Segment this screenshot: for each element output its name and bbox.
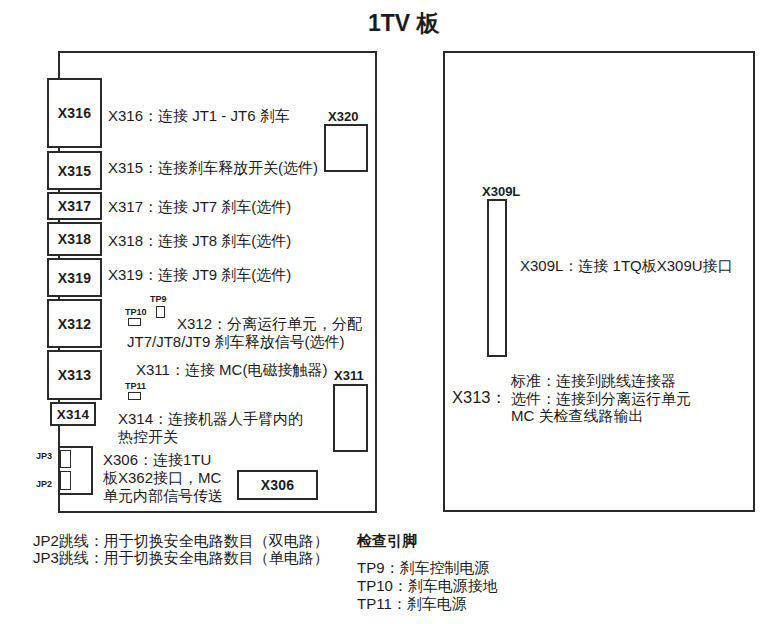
connector-x309l: [487, 199, 507, 357]
x312-description-line2: JT7/JT8/JT9 刹车释放信号(选件): [127, 333, 345, 351]
connector-x313: X313: [47, 350, 102, 400]
x318-description: X318：连接 JT8 刹车(选件): [108, 232, 291, 250]
x311-description: X311：连接 MC(电磁接触器): [136, 361, 327, 379]
jp3-pin: [60, 450, 71, 468]
check-pins-title: 检查引脚: [357, 532, 417, 550]
x313-note-line3: MC 关检查线路输出: [511, 407, 644, 425]
jp3-footnote: JP3跳线：用于切换安全电路数目（单电路）: [33, 549, 329, 567]
jp2-label: JP2: [36, 479, 52, 489]
connector-x316: X316: [47, 78, 102, 148]
x314-description-line2: 热控开关: [118, 428, 178, 446]
x313-note-label: X313：: [452, 389, 507, 407]
connector-x312: X312: [47, 299, 102, 348]
connector-x315: X315: [47, 151, 102, 190]
x313-note-line1: 标准：连接到跳线连接器: [511, 372, 676, 390]
connector-x320-label: X320: [328, 109, 358, 124]
connector-x312-label: X312: [58, 316, 92, 332]
tp9-label: TP9: [150, 294, 167, 304]
x314-description-line1: X314：连接机器人手臂内的: [118, 410, 303, 428]
tp10-footnote: TP10：刹车电源接地: [357, 577, 498, 595]
connector-x306-label: X306: [261, 477, 295, 493]
connector-x313-label: X313: [58, 367, 92, 383]
connector-x319-label: X319: [58, 270, 92, 286]
x306-description-line1: X306：连接1TU: [103, 451, 211, 469]
connector-x309l-label: X309L: [482, 184, 520, 199]
x317-description: X317：连接 JT7 刹车(选件): [108, 198, 291, 216]
connector-x311-label: X311: [334, 368, 364, 383]
connector-x315-label: X315: [58, 163, 92, 179]
connector-x320: [324, 124, 368, 172]
tp11-footnote: TP11：刹车电源: [357, 595, 467, 613]
connector-x317-label: X317: [58, 198, 92, 214]
connector-x318-label: X318: [58, 231, 92, 247]
tp11-pad: [128, 392, 141, 400]
x313-note-line2: 选件：连接到分离运行单元: [511, 390, 691, 408]
jp2-footnote: JP2跳线：用于切换安全电路数目（双电路）: [33, 532, 329, 550]
x319-description: X319：连接 JT9 刹车(选件): [108, 266, 291, 284]
x315-description: X315：连接刹车释放开关(选件): [108, 159, 318, 177]
x316-description: X316：连接 JT1 - JT6 刹车: [108, 107, 290, 125]
connector-x316-label: X316: [58, 105, 92, 121]
page-title: 1TV 板: [368, 8, 440, 39]
connector-x318: X318: [47, 222, 102, 256]
connector-x319: X319: [47, 258, 102, 297]
jp3-label: JP3: [36, 451, 52, 461]
connector-x311: [333, 384, 368, 452]
tp10-pad: [128, 318, 141, 326]
tp9-pad: [156, 306, 165, 318]
x306-description-line2: 板X362接口，MC: [103, 469, 221, 487]
diagram-canvas: 1TV 板 X316 X315 X317 X318 X319 X312 X313…: [0, 0, 767, 624]
x306-description-line3: 单元内部信号传送: [103, 487, 223, 505]
connector-x306: X306: [237, 470, 318, 500]
jp2-pin: [60, 471, 71, 490]
connector-x314-label: X314: [57, 407, 89, 422]
x309l-description: X309L：连接 1TQ板X309U接口: [520, 257, 733, 275]
tp9-footnote: TP9：刹车控制电源: [357, 559, 490, 577]
connector-x317: X317: [47, 192, 102, 220]
connector-x314: X314: [50, 402, 96, 426]
tp11-label: TP11: [125, 381, 146, 391]
x312-description-line1: X312：分离运行单元，分配: [177, 315, 362, 333]
tp10-label: TP10: [125, 307, 147, 317]
